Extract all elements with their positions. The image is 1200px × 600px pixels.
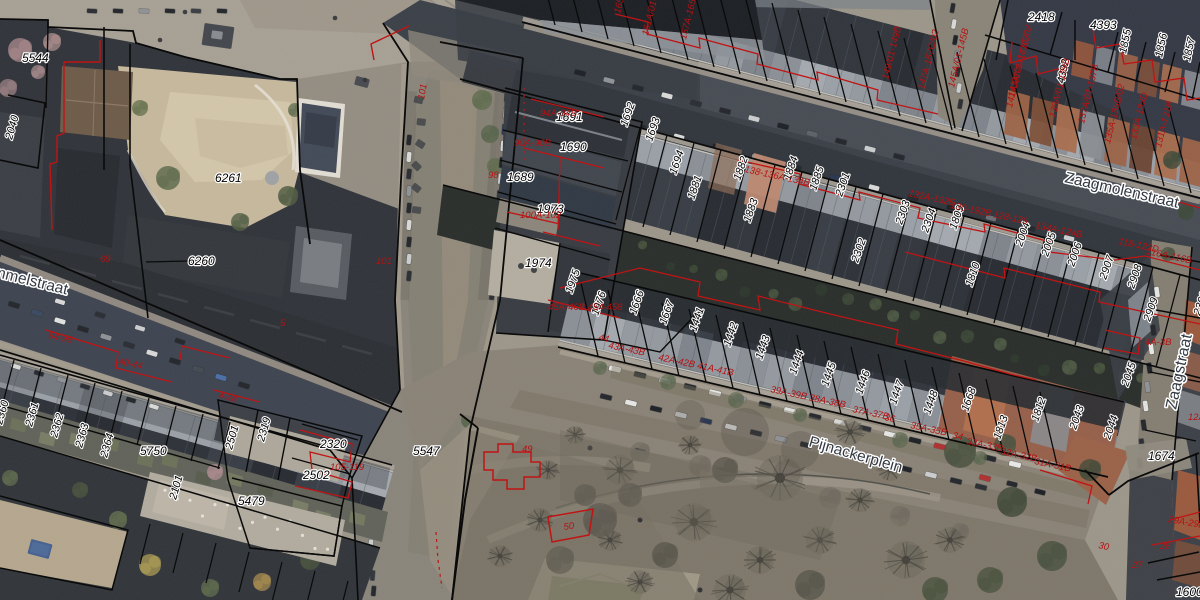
svg-text:2418: 2418 <box>1027 10 1055 24</box>
svg-text:6260: 6260 <box>188 254 215 268</box>
svg-text:4393: 4393 <box>1090 18 1117 32</box>
svg-text:1674: 1674 <box>1148 449 1175 463</box>
svg-text:4A-3B: 4A-3B <box>1145 337 1172 348</box>
svg-text:69: 69 <box>100 254 111 265</box>
svg-text:34: 34 <box>951 430 964 443</box>
svg-text:2320: 2320 <box>319 437 347 451</box>
svg-text:5544: 5544 <box>22 51 49 65</box>
svg-text:5750: 5750 <box>140 444 167 458</box>
svg-text:5: 5 <box>280 318 286 329</box>
svg-text:98: 98 <box>488 170 499 181</box>
svg-text:2502: 2502 <box>302 468 330 482</box>
svg-text:1974: 1974 <box>525 256 552 270</box>
svg-text:6261: 6261 <box>215 171 242 185</box>
svg-text:94A-94B: 94A-94B <box>540 108 578 119</box>
svg-text:45A-46B 454-458: 45A-46B 454-458 <box>548 302 623 313</box>
svg-text:28: 28 <box>1159 541 1171 552</box>
svg-text:49: 49 <box>522 444 533 455</box>
svg-text:1690: 1690 <box>560 140 587 154</box>
svg-text:101: 101 <box>376 256 392 267</box>
svg-text:90A-90B: 90A-90B <box>514 138 552 149</box>
svg-text:12A-: 12A- <box>1188 412 1200 423</box>
svg-text:27: 27 <box>1131 560 1143 571</box>
svg-text:5479: 5479 <box>238 494 265 508</box>
svg-text:5547: 5547 <box>413 444 441 458</box>
svg-text:1600: 1600 <box>1176 585 1200 599</box>
svg-text:1689: 1689 <box>507 170 534 184</box>
svg-text:100A-102: 100A-102 <box>520 210 562 221</box>
svg-text:105-119: 105-119 <box>330 462 365 473</box>
